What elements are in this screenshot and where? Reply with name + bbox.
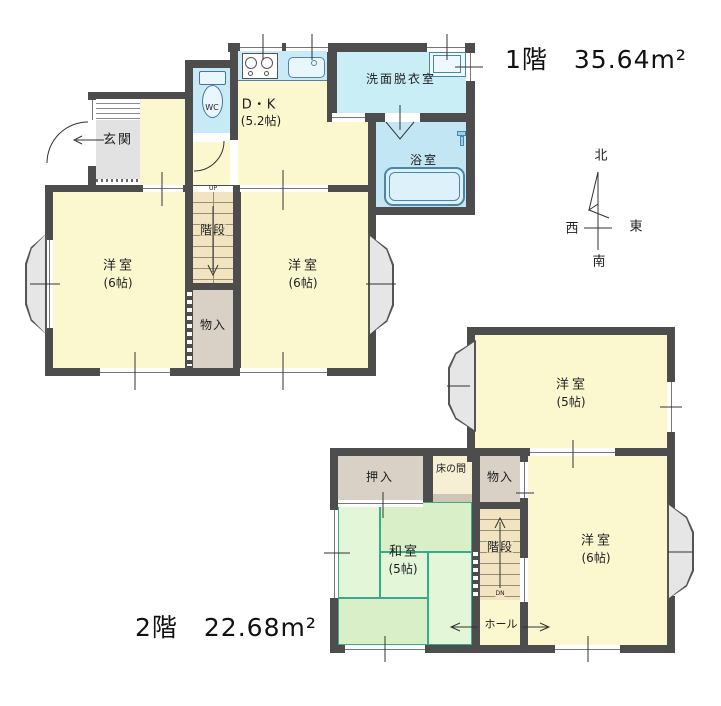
bath-doorway (385, 113, 420, 122)
f2-washitsu-label: 和室 (389, 546, 419, 559)
compass-south-label: 南 (592, 256, 605, 269)
wall (423, 456, 433, 502)
closet-folding-door (187, 292, 192, 366)
f2-stairs-label: 階段 (487, 541, 513, 553)
f2-tokonoma-edge (433, 494, 472, 502)
wall (233, 192, 241, 376)
dk-label: D・K (242, 99, 277, 112)
wall (230, 43, 238, 140)
f1-west-room-label: 洋室 (103, 260, 135, 273)
stairs-up-label: UP (209, 186, 217, 192)
window (345, 645, 425, 653)
window (427, 43, 465, 52)
window (466, 53, 475, 81)
bay-window (448, 340, 476, 432)
tatami-mat (338, 502, 380, 598)
compass-glyph (584, 172, 612, 250)
entrance-door-arc (47, 122, 88, 163)
floor1-title: 1階 35.64m² (505, 40, 687, 76)
stairs-dn-label: DN (495, 591, 504, 597)
wall (480, 502, 520, 509)
floor-plan-canvas: 1階 35.64m² 2階 22.68m² 玄関 WC D・K (5.2帖) 洗… (0, 0, 721, 706)
sink-drain (311, 60, 317, 66)
stove-burner (245, 57, 257, 69)
bay-window (368, 234, 394, 336)
f1-east-room-size: (6帖) (289, 277, 318, 289)
stove-knob (264, 71, 269, 76)
wc-doorway (193, 133, 230, 142)
wall (330, 448, 467, 456)
f1-staircase (193, 192, 233, 283)
storage-door (520, 462, 528, 498)
compass-north-label: 北 (594, 150, 607, 163)
window (555, 645, 620, 653)
entrance-doorway (88, 120, 96, 166)
f2-staircase (480, 509, 520, 600)
washroom-label: 洗面脱衣室 (366, 73, 436, 85)
genkan-step-edge (96, 179, 140, 182)
wall (467, 327, 675, 335)
wall (667, 327, 675, 653)
f1-east-room-label: 洋室 (288, 260, 320, 273)
f2-room5-size: (5帖) (557, 396, 586, 408)
window (240, 368, 327, 376)
kitchen-sink (288, 57, 325, 78)
dk-size-label: (5.2帖) (241, 115, 281, 127)
bay-window (667, 503, 694, 600)
f2-oshiire-label: 押入 (366, 471, 394, 483)
f1-west-room-size: (6帖) (104, 277, 133, 289)
room-door (520, 558, 528, 602)
tatami-mat (428, 552, 472, 645)
stove-knob (248, 71, 253, 76)
f2-tokonoma-label: 床の間 (436, 465, 466, 475)
wc-label: WC (205, 104, 219, 112)
toilet-bowl (202, 85, 223, 118)
f1-storage-label: 物入 (200, 319, 226, 331)
f1-stairs-label: 階段 (200, 224, 226, 236)
wall (420, 113, 466, 122)
f1-hall-floor (140, 96, 185, 192)
compass-east-label: 東 (629, 221, 642, 234)
sliding-door (143, 185, 183, 192)
window (88, 100, 96, 120)
genkan-label: 玄関 (103, 134, 133, 147)
wall (368, 207, 475, 215)
bay-window (25, 233, 47, 335)
compass-west-label: 西 (565, 223, 578, 236)
tatami-mat (338, 598, 428, 645)
washitsu-folding-door (473, 552, 478, 600)
stove-burner (261, 57, 273, 69)
sliding-door (530, 448, 615, 456)
window (667, 382, 675, 432)
f2-room6-label: 洋室 (581, 535, 613, 548)
toilet-tank (199, 71, 226, 85)
washing-machine-drum (433, 55, 461, 73)
wall (327, 43, 337, 122)
wall (193, 283, 233, 290)
f2-storage-label: 物入 (487, 471, 513, 483)
washroom-sliding-door (332, 113, 365, 122)
window (330, 510, 338, 598)
sliding-door (240, 185, 328, 192)
oshiire-sliding-door (338, 500, 423, 507)
f2-room5-label: 洋室 (556, 379, 588, 392)
window (100, 368, 170, 376)
bath-faucet (460, 136, 464, 146)
bathtub-inner (389, 172, 460, 201)
f2-hall-label: ホール (485, 619, 518, 630)
floor2-title: 2階 22.68m² (135, 608, 317, 644)
wall (472, 456, 480, 645)
bath-label: 浴室 (410, 154, 438, 166)
f1-genkan-floor (96, 120, 140, 182)
wall (88, 92, 188, 99)
f2-room6-size: (6帖) (582, 552, 611, 564)
f2-washitsu-size: (5帖) (389, 563, 418, 575)
